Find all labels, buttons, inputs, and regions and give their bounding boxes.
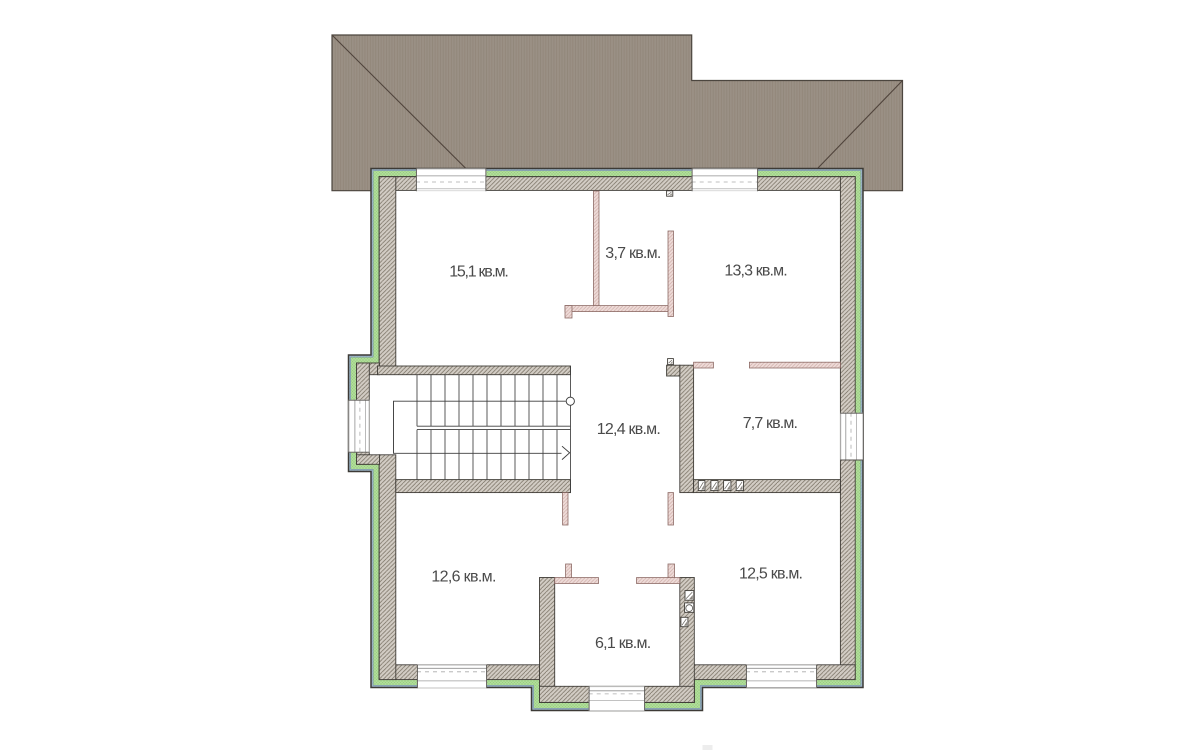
svg-text:12,4 кв.м.: 12,4 кв.м. <box>597 421 661 438</box>
svg-text:12,5 кв.м.: 12,5 кв.м. <box>739 566 803 583</box>
svg-text:6,1 кв.м.: 6,1 кв.м. <box>595 635 651 652</box>
svg-text:13,3 кв.м.: 13,3 кв.м. <box>724 263 787 280</box>
svg-text:7,7 кв.м.: 7,7 кв.м. <box>743 415 798 432</box>
svg-text:3,7 кв.м.: 3,7 кв.м. <box>605 245 661 262</box>
svg-text:15,1 кв.м.: 15,1 кв.м. <box>449 264 509 281</box>
svg-text:12,6 кв.м.: 12,6 кв.м. <box>431 569 496 586</box>
